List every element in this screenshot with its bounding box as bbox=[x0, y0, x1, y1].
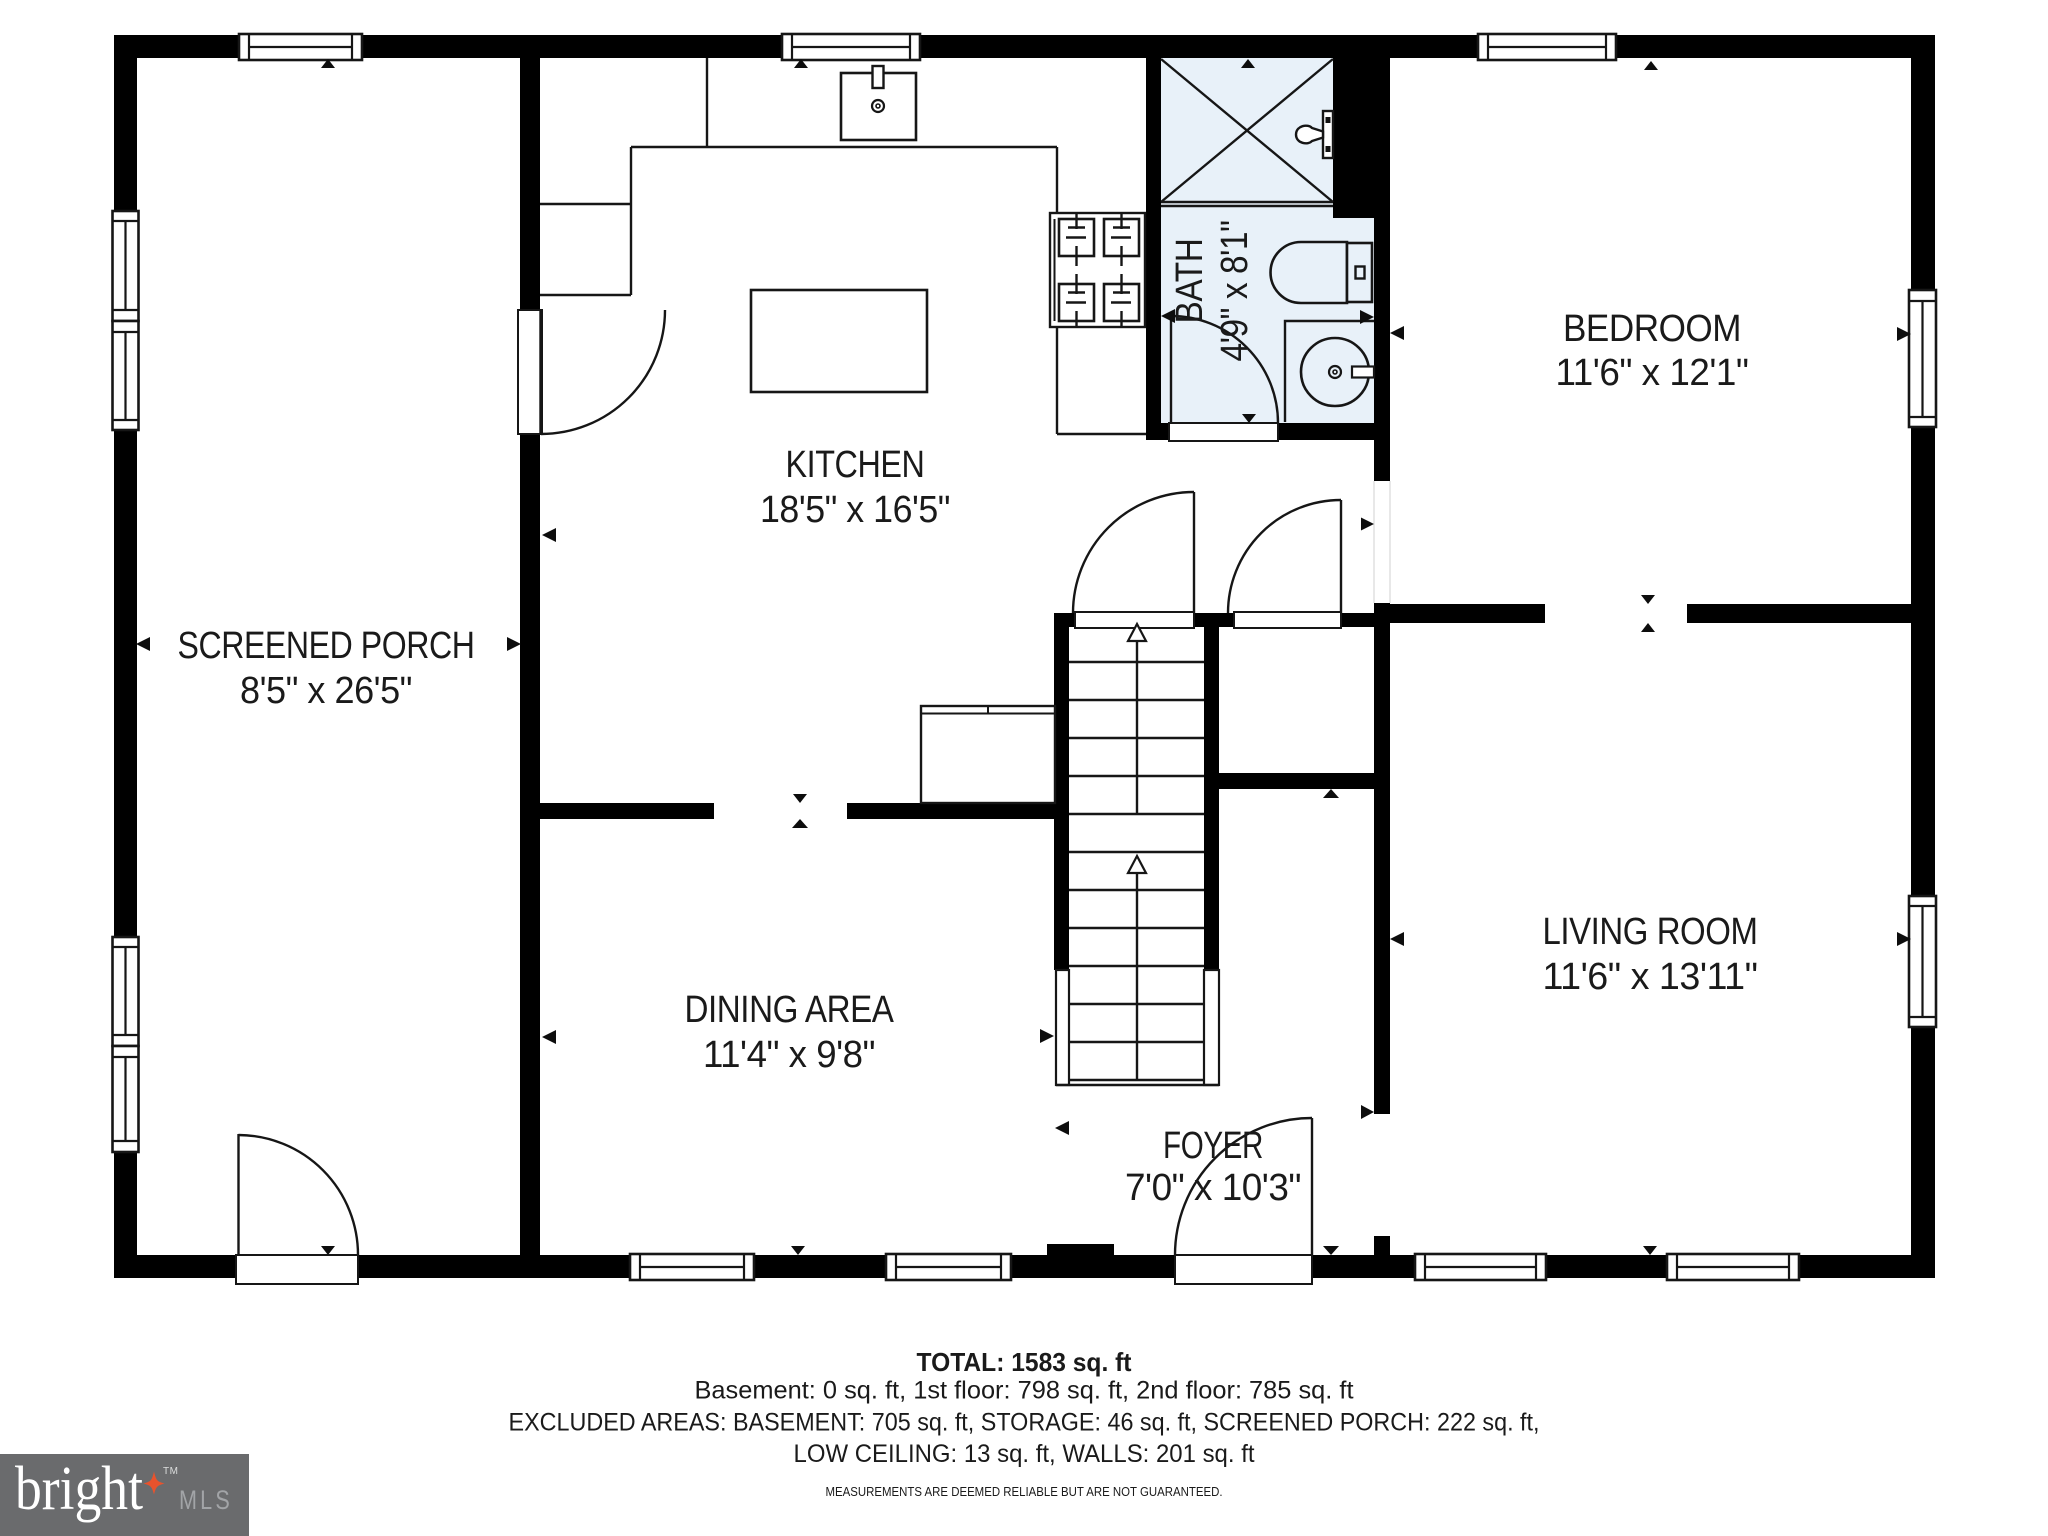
svg-text:FOYER: FOYER bbox=[1163, 1125, 1263, 1167]
svg-text:BEDROOM: BEDROOM bbox=[1563, 308, 1741, 350]
svg-text:11'6" x 12'1": 11'6" x 12'1" bbox=[1556, 352, 1749, 394]
svg-text:4'9" x 8'1": 4'9" x 8'1" bbox=[1214, 221, 1256, 362]
svg-text:KITCHEN: KITCHEN bbox=[786, 444, 925, 486]
svg-text:LOW CEILING: 13 sq. ft, WALLS:: LOW CEILING: 13 sq. ft, WALLS: 201 sq. f… bbox=[794, 1440, 1255, 1468]
svg-text:8'5" x 26'5": 8'5" x 26'5" bbox=[240, 670, 412, 712]
svg-text:bright: bright bbox=[15, 1455, 143, 1523]
svg-text:BATH: BATH bbox=[1169, 239, 1211, 324]
svg-text:7'0" x 10'3": 7'0" x 10'3" bbox=[1125, 1167, 1301, 1209]
svg-text:MLS: MLS bbox=[179, 1485, 233, 1515]
svg-text:LIVING ROOM: LIVING ROOM bbox=[1543, 911, 1758, 953]
svg-text:TOTAL: 1583 sq. ft: TOTAL: 1583 sq. ft bbox=[917, 1347, 1132, 1377]
svg-text:MEASUREMENTS ARE DEEMED RELIAB: MEASUREMENTS ARE DEEMED RELIABLE BUT ARE… bbox=[826, 1485, 1223, 1499]
svg-text:DINING AREA: DINING AREA bbox=[685, 989, 895, 1031]
svg-text:SCREENED PORCH: SCREENED PORCH bbox=[178, 625, 475, 667]
svg-text:TM: TM bbox=[163, 1466, 178, 1477]
svg-text:18'5" x 16'5": 18'5" x 16'5" bbox=[760, 489, 950, 531]
svg-text:EXCLUDED AREAS: BASEMENT: 705: EXCLUDED AREAS: BASEMENT: 705 sq. ft, ST… bbox=[509, 1409, 1540, 1437]
svg-text:11'4" x 9'8": 11'4" x 9'8" bbox=[703, 1034, 875, 1076]
svg-text:11'6" x 13'11": 11'6" x 13'11" bbox=[1543, 956, 1758, 998]
svg-text:Basement: 0 sq. ft, 1st floor:: Basement: 0 sq. ft, 1st floor: 798 sq. f… bbox=[695, 1377, 1354, 1405]
